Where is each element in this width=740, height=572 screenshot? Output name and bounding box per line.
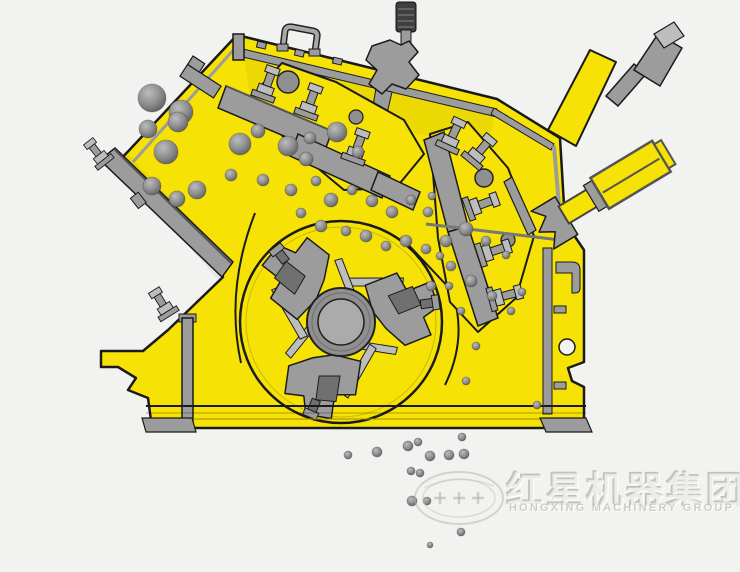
base-skid-left [142, 418, 196, 432]
rock-particle [445, 282, 453, 290]
apron1-pivot [277, 71, 299, 93]
roof-end-plate [233, 34, 244, 60]
rock-particle [427, 542, 433, 548]
frame-hole [559, 339, 575, 355]
frame-tab [554, 382, 566, 389]
rock-particle [344, 451, 352, 459]
rock-particle [457, 307, 465, 315]
rock-particle [296, 208, 306, 218]
rock-particle [324, 193, 338, 207]
rock-particle [304, 132, 316, 144]
rock-particle [416, 469, 424, 477]
rock-particle [366, 195, 378, 207]
rock-particle [278, 136, 298, 156]
rock-particle [381, 241, 391, 251]
rock-particle [407, 496, 417, 506]
rock-particle [428, 192, 436, 200]
rock-particle [225, 169, 237, 181]
rock-particle [188, 181, 206, 199]
rock-particle [426, 281, 436, 291]
rock-particle [425, 451, 435, 461]
rock-particle [481, 236, 491, 246]
rock-particle [406, 195, 416, 205]
rock-particle [462, 377, 470, 385]
rock-particle [352, 146, 364, 158]
impact-crusher-diagram [0, 0, 740, 572]
rock-particle [169, 191, 185, 207]
rock-particle [229, 133, 251, 155]
rock-particle [507, 307, 515, 315]
rock-particle [472, 342, 480, 350]
rock-particle [487, 291, 497, 301]
right-inner-wall [543, 248, 552, 414]
rock-particle [257, 174, 269, 186]
base-skid-right [540, 418, 592, 432]
rock-particle [403, 441, 413, 451]
roof-clip [294, 49, 304, 57]
rock-particle [299, 152, 313, 166]
apron1-hole [349, 110, 363, 124]
rock-particle [440, 235, 452, 247]
rock-particle [341, 226, 351, 236]
rock-particle [138, 84, 166, 112]
rock-particle [360, 230, 372, 242]
rock-particle [400, 235, 412, 247]
rock-particle [414, 438, 422, 446]
rock-particle [459, 449, 469, 459]
rotor-shaft [318, 299, 364, 345]
rock-particle [154, 140, 178, 164]
rock-particle [168, 112, 188, 132]
rock-particle [386, 206, 398, 218]
rock-particle [465, 275, 477, 287]
rock-particle [502, 251, 510, 259]
rock-particle [311, 176, 321, 186]
rock-particle [444, 450, 454, 460]
rock-particle [457, 528, 465, 536]
frame-tab [554, 306, 566, 313]
rock-particle [139, 120, 157, 138]
rock-particle [143, 177, 161, 195]
rock-particle [446, 261, 456, 271]
rock-particle [421, 244, 431, 254]
roof-clip [332, 57, 342, 65]
rock-particle [423, 497, 431, 505]
rock-particle [436, 252, 444, 260]
rock-particle [285, 184, 297, 196]
rock-particle [315, 220, 327, 232]
rock-particle [518, 288, 526, 296]
rock-particle [458, 433, 466, 441]
apron2-pivot [475, 169, 493, 187]
rock-particle [459, 222, 473, 236]
left-frame-column [182, 318, 193, 424]
rock-particle [327, 122, 347, 142]
rock-particle [423, 207, 433, 217]
rock-particle [372, 447, 382, 457]
rock-particle [407, 467, 415, 475]
rock-particle [347, 185, 357, 195]
rock-particle [251, 124, 265, 138]
roof-clip [256, 41, 266, 49]
rock-particle [533, 401, 541, 409]
diagram-stage: 红星机器集团 HONGXING MACHINERY GROUP [0, 0, 740, 572]
